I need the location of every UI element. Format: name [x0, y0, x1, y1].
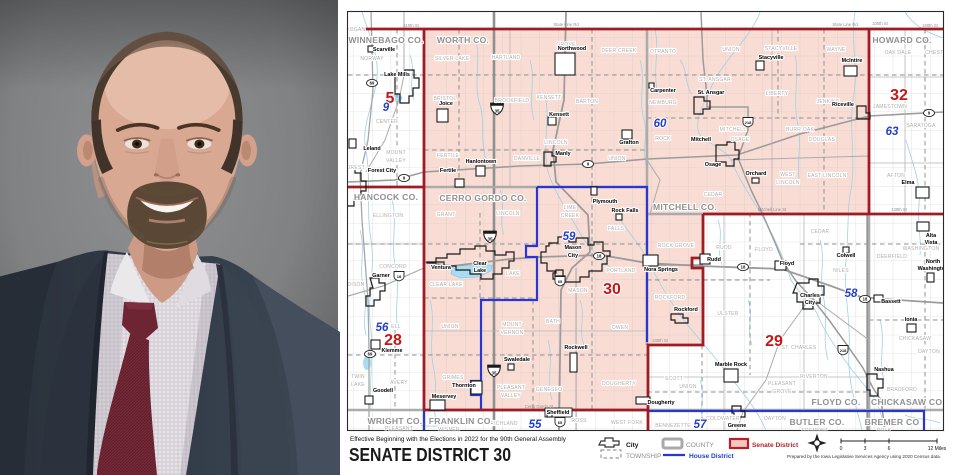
svg-text:ELL: ELL: [391, 324, 401, 330]
svg-text:DANVILLE: DANVILLE: [514, 156, 541, 162]
svg-text:GROVE: GROVE: [772, 389, 792, 395]
svg-text:AFTON: AFTON: [887, 173, 905, 179]
svg-text:Nora Springs: Nora Springs: [644, 267, 678, 273]
svg-text:Stacyville: Stacyville: [759, 55, 784, 61]
svg-text:DEERFIELD: DEERFIELD: [877, 254, 907, 260]
svg-text:VALLEY: VALLEY: [501, 393, 521, 399]
svg-text:Sheffield: Sheffield: [547, 410, 570, 416]
svg-text:PLEASANT: PLEASANT: [768, 381, 796, 387]
svg-text:MITCHELL CO.: MITCHELL CO.: [653, 202, 717, 212]
svg-text:510th St: 510th St: [403, 23, 419, 28]
svg-text:KENSETT: KENSETT: [537, 95, 562, 101]
svg-text:HOWARD CO.: HOWARD CO.: [872, 35, 931, 45]
svg-text:RICHLAND: RICHLAND: [490, 421, 518, 427]
svg-text:55: 55: [529, 419, 542, 431]
svg-text:WAYNE: WAYNE: [826, 47, 845, 53]
svg-text:Elma: Elma: [902, 180, 916, 186]
svg-text:PLEASANT: PLEASANT: [385, 426, 413, 432]
svg-text:Lake Mills: Lake Mills: [384, 72, 410, 78]
svg-text:LAKE: LAKE: [351, 382, 365, 388]
svg-text:57: 57: [694, 419, 707, 431]
svg-text:65: 65: [558, 279, 563, 284]
svg-text:ULSTER: ULSTER: [717, 311, 738, 317]
svg-text:MADISON: MADISON: [339, 282, 364, 288]
svg-text:58: 58: [845, 288, 858, 300]
svg-text:190th St: 190th St: [922, 23, 938, 28]
svg-text:100th St: 100th St: [872, 21, 888, 26]
svg-text:Orchard: Orchard: [746, 171, 767, 177]
svg-text:18: 18: [863, 297, 868, 302]
svg-text:35: 35: [491, 370, 497, 375]
svg-text:Carpenter: Carpenter: [650, 88, 676, 94]
svg-text:WINNEBAGO CO.: WINNEBAGO CO.: [348, 35, 423, 45]
svg-text:WASHINGTON: WASHINGTON: [903, 246, 940, 252]
svg-text:CREEK: CREEK: [561, 213, 580, 219]
svg-text:CERRO GORDO CO.: CERRO GORDO CO.: [439, 193, 526, 203]
svg-text:12 Miles: 12 Miles: [928, 446, 947, 452]
svg-text:SILVER LAKE: SILVER LAKE: [435, 56, 470, 62]
svg-text:Riceville: Riceville: [832, 102, 854, 108]
svg-text:Rockford: Rockford: [674, 307, 698, 313]
svg-text:TOWNSHIP: TOWNSHIP: [626, 453, 662, 460]
svg-text:DEER CREEK: DEER CREEK: [601, 48, 636, 54]
svg-text:Marble Rock: Marble Rock: [715, 362, 747, 368]
svg-text:St. Ansgar: St. Ansgar: [698, 90, 726, 96]
svg-text:218: 218: [840, 348, 847, 353]
svg-text:Leland: Leland: [363, 146, 380, 152]
svg-text:18: 18: [597, 254, 602, 259]
svg-text:Prepared by the Iowa Legislati: Prepared by the Iowa Legislative Service…: [787, 454, 941, 459]
svg-text:DOUGHERTY: DOUGHERTY: [602, 381, 637, 387]
svg-text:LAKE: LAKE: [506, 271, 520, 277]
svg-text:SENATE DISTRICT 30: SENATE DISTRICT 30: [349, 445, 511, 465]
svg-text:28: 28: [384, 332, 402, 349]
svg-text:Floyd: Floyd: [780, 261, 794, 267]
svg-text:EAST LINCOLN: EAST LINCOLN: [807, 173, 846, 179]
svg-text:Mason: Mason: [564, 245, 581, 251]
svg-text:VALLEY: VALLEY: [386, 158, 406, 164]
svg-text:OWEN: OWEN: [612, 325, 629, 331]
svg-text:OSAGE: OSAGE: [730, 137, 749, 143]
svg-text:Ventura: Ventura: [431, 265, 452, 271]
svg-text:ROSS: ROSS: [571, 418, 587, 424]
svg-text:SARATOGA: SARATOGA: [906, 123, 936, 129]
svg-text:City: City: [805, 300, 815, 306]
svg-text:WEST FORK: WEST FORK: [611, 420, 643, 426]
svg-text:Joice: Joice: [439, 101, 453, 107]
svg-text:LOGAN: LOGAN: [347, 27, 366, 33]
svg-text:CHESTER: CHESTER: [925, 50, 951, 56]
svg-text:69: 69: [370, 81, 375, 86]
svg-text:Alta: Alta: [926, 233, 937, 239]
svg-text:Osage: Osage: [705, 162, 721, 168]
svg-text:32: 32: [890, 87, 908, 104]
svg-text:BATH: BATH: [546, 319, 560, 325]
svg-text:McIntire: McIntire: [842, 58, 863, 64]
svg-text:Plymouth: Plymouth: [593, 199, 618, 205]
svg-text:UNION: UNION: [722, 47, 740, 53]
svg-text:HANCOCK CO.: HANCOCK CO.: [354, 192, 418, 202]
svg-text:Mitchell Line St: Mitchell Line St: [758, 207, 787, 212]
svg-text:0: 0: [840, 446, 843, 452]
svg-text:BURR OAK: BURR OAK: [786, 127, 815, 133]
svg-text:TWIN: TWIN: [351, 374, 365, 380]
svg-text:AVERY: AVERY: [390, 380, 408, 386]
svg-text:35: 35: [494, 108, 500, 113]
svg-text:Ionia: Ionia: [905, 317, 919, 323]
svg-text:STACYVILLE: STACYVILLE: [765, 46, 798, 52]
svg-text:Effective Beginning with the E: Effective Beginning with the Elections i…: [350, 436, 567, 443]
svg-text:Manly: Manly: [555, 151, 570, 157]
svg-text:Lake: Lake: [474, 268, 486, 274]
svg-text:OTRANTO: OTRANTO: [650, 49, 676, 55]
svg-text:ST. CHARLES: ST. CHARLES: [782, 345, 817, 351]
svg-text:ROCKFORD: ROCKFORD: [655, 295, 686, 301]
svg-text:WISNER: WISNER: [438, 427, 460, 433]
svg-text:LINCOLN: LINCOLN: [776, 180, 800, 186]
svg-text:Rockwell: Rockwell: [564, 345, 588, 351]
svg-text:3: 3: [864, 446, 867, 452]
svg-text:North: North: [926, 259, 940, 265]
svg-text:218: 218: [745, 120, 752, 125]
svg-text:RIVERTON: RIVERTON: [800, 374, 828, 380]
svg-text:GENESEO: GENESEO: [536, 387, 562, 393]
svg-text:ST. ANSGAR: ST. ANSGAR: [699, 77, 731, 83]
svg-text:UNION: UNION: [679, 384, 697, 390]
svg-text:65: 65: [558, 420, 563, 425]
svg-text:MITCHELL: MITCHELL: [720, 127, 747, 133]
svg-text:Bassett: Bassett: [881, 299, 901, 305]
svg-text:63: 63: [886, 126, 899, 138]
svg-text:Scarville: Scarville: [373, 47, 395, 53]
svg-text:BRADFORD: BRADFORD: [887, 387, 917, 393]
svg-text:DAYTON: DAYTON: [764, 416, 786, 422]
svg-text:59: 59: [563, 231, 576, 243]
svg-text:ROCK: ROCK: [655, 136, 671, 142]
svg-text:LIME: LIME: [564, 205, 577, 211]
svg-text:Dougherty: Dougherty: [648, 400, 675, 406]
svg-text:SCOTT: SCOTT: [665, 376, 683, 382]
svg-text:LINCOLN: LINCOLN: [544, 140, 568, 146]
svg-text:Colwell: Colwell: [837, 253, 856, 259]
svg-text:30: 30: [603, 281, 621, 298]
svg-text:56: 56: [376, 322, 389, 334]
svg-text:18: 18: [741, 265, 746, 270]
svg-text:JAMESTOWN: JAMESTOWN: [873, 104, 907, 110]
svg-text:Clear: Clear: [473, 261, 487, 267]
svg-text:ROCK GROVE: ROCK GROVE: [658, 243, 695, 249]
svg-text:CONCORD: CONCORD: [379, 264, 407, 270]
svg-text:CHICKASAW: CHICKASAW: [899, 336, 931, 342]
svg-text:NORWAY: NORWAY: [360, 56, 384, 62]
svg-text:WEST: WEST: [780, 172, 795, 178]
svg-text:Thornton: Thornton: [452, 383, 476, 389]
svg-text:Hanlontown: Hanlontown: [466, 159, 497, 165]
svg-text:CEDAR: CEDAR: [811, 229, 830, 235]
svg-text:BARTON: BARTON: [576, 99, 598, 105]
svg-text:WRIGHT CO.: WRIGHT CO.: [367, 416, 422, 426]
svg-text:RUDD: RUDD: [716, 245, 732, 251]
svg-text:BROOKFIELD: BROOKFIELD: [495, 98, 530, 104]
svg-text:Forest City: Forest City: [368, 168, 396, 174]
svg-text:18: 18: [397, 274, 402, 279]
svg-text:MOUNT: MOUNT: [386, 150, 406, 156]
svg-text:CEDAR: CEDAR: [704, 192, 723, 198]
svg-text:Goodell: Goodell: [373, 388, 394, 394]
svg-text:State Line Rd: State Line Rd: [832, 22, 858, 27]
svg-text:LIBERTY: LIBERTY: [766, 91, 789, 97]
svg-text:GRANT: GRANT: [437, 212, 456, 218]
svg-text:9: 9: [383, 102, 390, 114]
svg-text:UNION: UNION: [441, 324, 459, 330]
svg-text:Charles: Charles: [800, 293, 820, 299]
svg-text:60: 60: [654, 118, 667, 130]
svg-text:COUNTY: COUNTY: [686, 442, 714, 449]
svg-text:COLDWATER: COLDWATER: [706, 416, 740, 422]
svg-text:35: 35: [487, 236, 493, 241]
svg-text:Rock Falls: Rock Falls: [612, 208, 639, 214]
svg-text:Fertile: Fertile: [440, 168, 456, 174]
svg-text:DOUGLAS: DOUGLAS: [809, 137, 836, 143]
svg-text:Rudd: Rudd: [707, 257, 721, 263]
svg-text:6: 6: [888, 446, 891, 452]
svg-text:BENNEZETTE: BENNEZETTE: [655, 423, 691, 429]
svg-text:Northwood: Northwood: [558, 46, 586, 52]
svg-text:OAK DALE: OAK DALE: [884, 50, 911, 56]
svg-text:MOUNT: MOUNT: [502, 322, 522, 328]
svg-text:NEWBURG: NEWBURG: [649, 100, 677, 106]
svg-text:Kensett: Kensett: [549, 112, 569, 118]
svg-text:Senate District: Senate District: [752, 442, 799, 449]
svg-text:FERTILE: FERTILE: [437, 153, 460, 159]
svg-text:CHICKASAW CO.: CHICKASAW CO.: [871, 397, 945, 407]
svg-text:DAYTON: DAYTON: [918, 349, 940, 355]
svg-text:City: City: [568, 253, 578, 259]
svg-text:State Line Rd: State Line Rd: [553, 22, 579, 27]
svg-text:NILES: NILES: [833, 268, 849, 274]
svg-text:Vista: Vista: [925, 240, 939, 246]
svg-text:VERNON: VERNON: [501, 330, 524, 336]
svg-text:FALLS: FALLS: [608, 226, 625, 232]
svg-text:BUTLER CO.: BUTLER CO.: [789, 417, 844, 427]
svg-text:Nashua: Nashua: [874, 367, 894, 373]
svg-text:HARTLAND: HARTLAND: [492, 55, 521, 61]
svg-text:Grafton: Grafton: [619, 140, 638, 146]
svg-text:FOREST: FOREST: [343, 165, 365, 171]
svg-text:Swaledale: Swaledale: [504, 357, 530, 363]
svg-text:FLOYD: FLOYD: [755, 247, 773, 253]
svg-text:Meservey: Meservey: [432, 394, 457, 400]
svg-text:240th St: 240th St: [652, 338, 668, 343]
svg-text:Mitchell: Mitchell: [691, 137, 712, 143]
svg-text:ELLINGTON: ELLINGTON: [373, 213, 404, 219]
svg-text:GRIMES: GRIMES: [442, 375, 464, 381]
svg-text:MASON: MASON: [568, 288, 588, 294]
svg-text:City: City: [626, 442, 639, 449]
svg-text:CLEAR LAKE: CLEAR LAKE: [429, 282, 463, 288]
svg-text:LINCOLN: LINCOLN: [496, 211, 520, 217]
svg-text:BREMER CO: BREMER CO: [865, 417, 920, 427]
svg-text:PORTLAND: PORTLAND: [606, 268, 635, 274]
svg-text:130th St: 130th St: [891, 207, 907, 212]
svg-text:PLEASANT: PLEASANT: [497, 385, 525, 391]
svg-text:29: 29: [765, 333, 783, 350]
svg-text:House District: House District: [689, 453, 735, 460]
svg-text:Greene: Greene: [728, 423, 747, 429]
svg-text:Garner: Garner: [372, 273, 391, 279]
svg-text:69: 69: [368, 352, 373, 357]
svg-text:FRANKLIN CO.: FRANKLIN CO.: [429, 416, 494, 426]
svg-text:CENTER: CENTER: [376, 119, 398, 125]
svg-text:UNION: UNION: [608, 156, 626, 162]
svg-text:FLOYD CO.: FLOYD CO.: [811, 397, 860, 407]
svg-text:Cerro Gordo St: Cerro Gordo St: [525, 404, 554, 409]
svg-text:WORTH CO.: WORTH CO.: [437, 35, 489, 45]
